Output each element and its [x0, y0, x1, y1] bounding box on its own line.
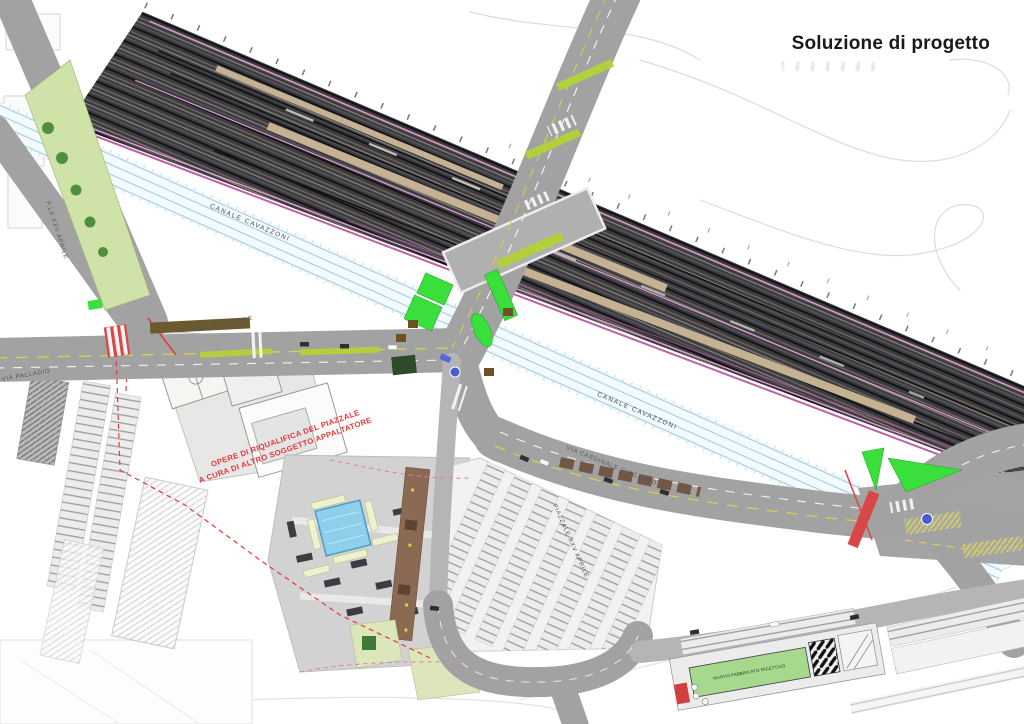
roundabout-sign-icon — [450, 367, 460, 377]
tree-icon — [42, 122, 54, 134]
roundabout-sign-icon — [922, 514, 933, 525]
red-crosswalk — [104, 325, 130, 358]
car-icon — [388, 345, 397, 350]
site-plan: CANALE CAVAZZONI CANALE CAVAZZONI — [0, 0, 1024, 724]
car-icon — [340, 344, 349, 349]
crosswalk — [249, 332, 262, 359]
tree-icon — [362, 636, 376, 650]
car-icon — [690, 629, 700, 635]
plan-drawing: CANALE CAVAZZONI CANALE CAVAZZONI — [0, 0, 1024, 724]
canopy-roof — [112, 477, 208, 649]
tree-icon — [56, 152, 68, 164]
tree-icon — [98, 247, 108, 257]
tree-icon — [71, 185, 82, 196]
hedge-block — [391, 355, 417, 375]
car-icon — [430, 606, 439, 611]
hedge-strip — [17, 376, 69, 465]
southeast-buildings: NUOVO FABBRICATO RICETTIVO — [666, 592, 1024, 714]
smudged-annotation — [782, 62, 874, 71]
west-blocks — [0, 372, 208, 682]
page-title: Soluzione di progetto — [690, 33, 990, 55]
tree-icon — [85, 217, 96, 228]
car-icon — [300, 342, 309, 347]
